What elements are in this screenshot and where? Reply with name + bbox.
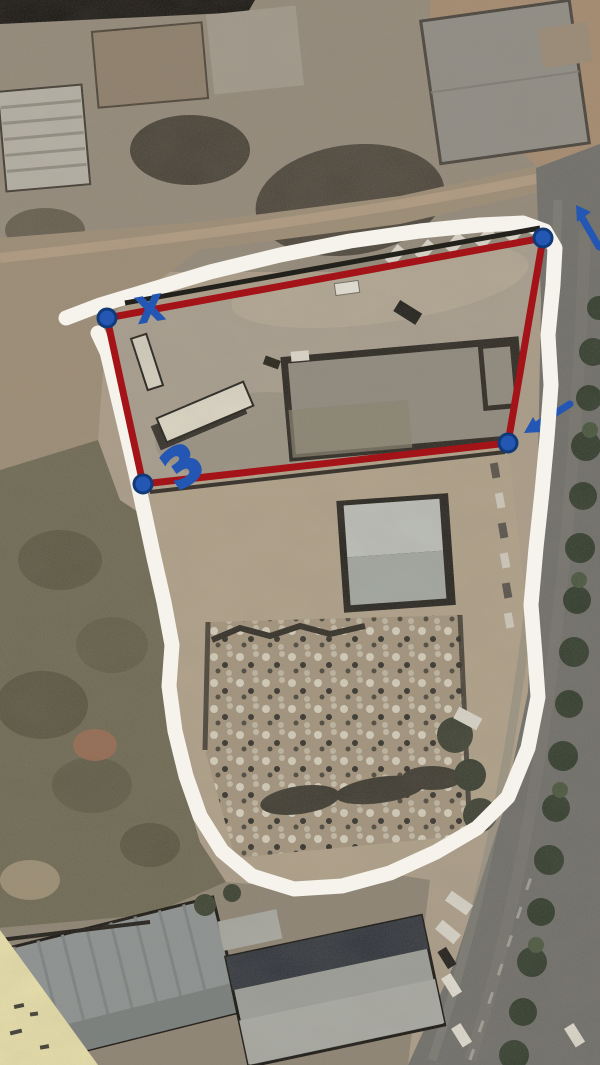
satellite-map-canvas: X 3	[0, 0, 600, 1065]
annotated-satellite-screenshot: X 3	[0, 0, 600, 1065]
corner-marker-east	[499, 434, 517, 452]
corner-marker-northeast	[534, 229, 552, 247]
corner-marker-southwest	[134, 475, 152, 493]
photo-grain-overlay	[0, 0, 600, 1065]
corner-marker-northwest	[98, 309, 116, 327]
satellite-scene	[0, 0, 600, 1065]
